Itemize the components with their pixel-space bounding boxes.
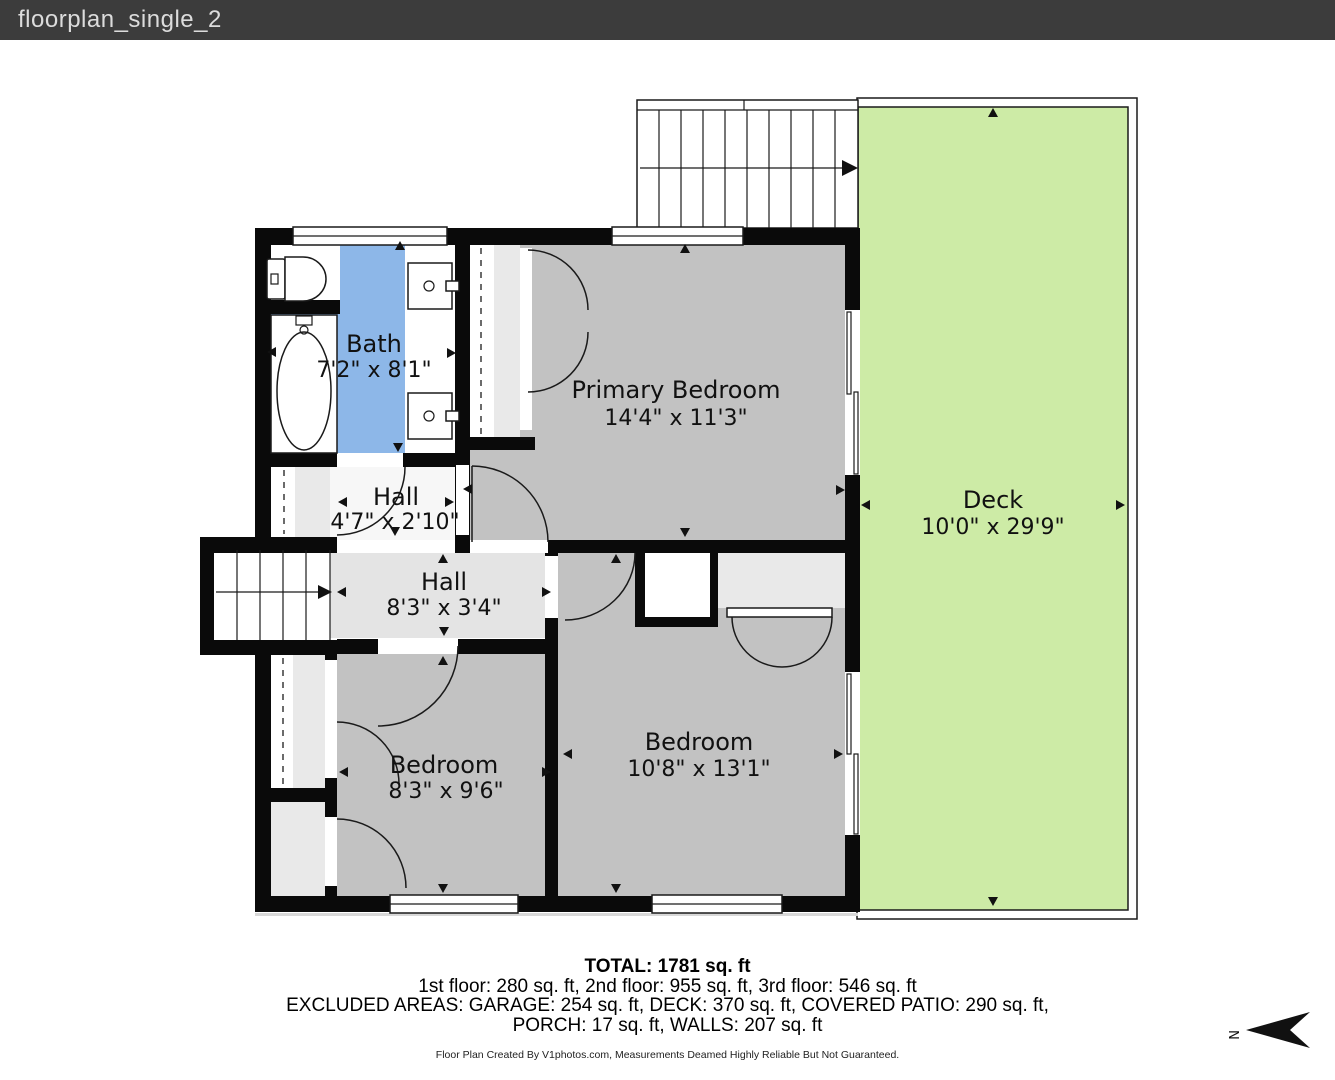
- disclaimer: Floor Plan Created By V1photos.com, Meas…: [0, 1049, 1335, 1061]
- left-stairs-floor: [214, 550, 330, 640]
- primary-bedroom-dims: 14'4" x 11'3": [604, 406, 747, 431]
- sink-lower: [408, 393, 459, 439]
- closet-primary: [468, 245, 520, 437]
- north-arrow-icon: [1246, 1012, 1310, 1048]
- bathtub: [271, 315, 337, 453]
- toilet: [267, 257, 326, 301]
- closet-middle: [645, 553, 710, 617]
- primary-bedroom-window: [612, 227, 743, 245]
- floor-areas: 1st floor: 280 sq. ft, 2nd floor: 955 sq…: [0, 977, 1335, 997]
- closet-upper-left: [271, 467, 330, 537]
- stairs-to-deck: [637, 100, 858, 228]
- bedroom-left-label: Bedroom: [390, 751, 499, 779]
- north-label: N: [1225, 1030, 1240, 1040]
- north-arrow: N: [1222, 1008, 1317, 1063]
- page: { "header": { "title": "floorplan_single…: [0, 0, 1335, 1080]
- bedroom-left-window: [390, 895, 518, 913]
- deck-dims: 10'0" x 29'9": [921, 515, 1064, 540]
- excluded-areas: EXCLUDED AREAS: GARAGE: 254 sq. ft, DECK…: [0, 996, 1335, 1016]
- excluded-areas-2: PORCH: 17 sq. ft, WALLS: 207 sq. ft: [0, 1016, 1335, 1036]
- upper-hall-label: Hall: [373, 483, 419, 511]
- deck-label: Deck: [963, 486, 1023, 514]
- page-title: floorplan_single_2: [18, 6, 222, 34]
- total-area: TOTAL: 1781 sq. ft: [0, 957, 1335, 977]
- primary-deck-sliding-door: [845, 310, 860, 475]
- bath-window: [293, 227, 447, 245]
- lower-hall-label: Hall: [421, 568, 467, 596]
- lower-hall-dims: 8'3" x 3'4": [386, 596, 501, 621]
- closet-lower-left-2: [271, 802, 325, 896]
- closet-lower-left-1: [271, 655, 325, 788]
- bedroom-right-window: [652, 895, 782, 913]
- upper-hall-dims: 4'7" x 2'10": [330, 510, 459, 535]
- bedroom-right-dims: 10'8" x 13'1": [627, 757, 770, 782]
- bath-label: Bath: [346, 330, 402, 358]
- primary-bedroom-label: Primary Bedroom: [572, 376, 781, 404]
- closet-bedroom-right: [718, 553, 845, 617]
- summary-footer: TOTAL: 1781 sq. ft 1st floor: 280 sq. ft…: [0, 957, 1335, 1061]
- bedroom-left-dims: 8'3" x 9'6": [388, 779, 503, 804]
- bath-dims: 7'2" x 8'1": [316, 358, 431, 383]
- sink-upper: [408, 263, 459, 309]
- bedroom-right-deck-sliding-door: [845, 672, 860, 835]
- bedroom-right-label: Bedroom: [645, 728, 754, 756]
- floorplan-canvas: Bath 7'2" x 8'1" Primary Bedroom 14'4" x…: [0, 40, 1335, 955]
- window-title-bar: floorplan_single_2: [0, 0, 1335, 40]
